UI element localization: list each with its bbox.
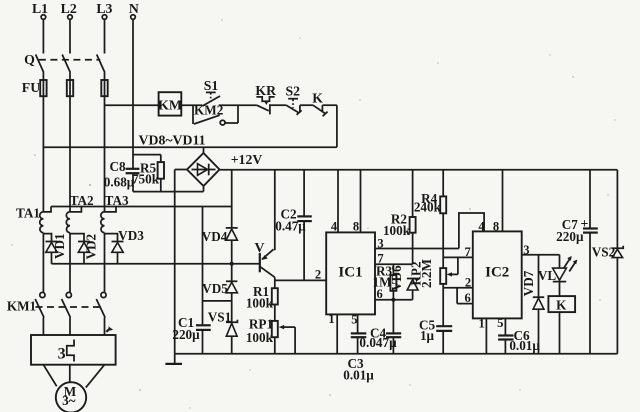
svg-text:1: 1 xyxy=(328,312,334,326)
svg-text:N: N xyxy=(129,1,139,16)
svg-text:IC1: IC1 xyxy=(338,265,362,281)
svg-text:0.47μ: 0.47μ xyxy=(275,218,306,233)
svg-text:TA1: TA1 xyxy=(16,206,40,221)
svg-text:2: 2 xyxy=(465,276,471,290)
svg-text:VD3: VD3 xyxy=(118,228,144,243)
svg-text:Q: Q xyxy=(24,52,35,67)
svg-text:100k: 100k xyxy=(246,296,274,311)
svg-text:100k: 100k xyxy=(383,223,411,238)
svg-text:K: K xyxy=(556,297,567,312)
svg-text:5: 5 xyxy=(497,316,503,330)
svg-text:IC2: IC2 xyxy=(485,265,509,281)
svg-text:FU: FU xyxy=(22,80,40,95)
svg-text:5: 5 xyxy=(351,313,357,327)
svg-text:4: 4 xyxy=(331,219,338,233)
svg-text:220μ: 220μ xyxy=(556,229,584,244)
svg-text:VD4: VD4 xyxy=(202,229,228,244)
svg-text:0.01μ: 0.01μ xyxy=(343,368,374,383)
svg-text:L1: L1 xyxy=(32,1,48,16)
svg-text:7: 7 xyxy=(465,245,471,259)
svg-text:0.68μ: 0.68μ xyxy=(104,175,135,190)
svg-text:C8: C8 xyxy=(109,159,126,174)
svg-text:4: 4 xyxy=(478,220,485,234)
svg-text:VD5: VD5 xyxy=(202,281,228,296)
svg-text:L3: L3 xyxy=(96,1,112,16)
svg-text:VD8~VD11: VD8~VD11 xyxy=(139,133,206,148)
svg-text:3: 3 xyxy=(58,346,66,363)
svg-text:VD1: VD1 xyxy=(52,233,67,259)
svg-text:VS1: VS1 xyxy=(208,310,231,325)
svg-text:KM: KM xyxy=(158,99,182,114)
svg-text:+12V: +12V xyxy=(231,152,263,167)
svg-text:S1: S1 xyxy=(204,78,219,93)
svg-text:240k: 240k xyxy=(414,200,442,215)
svg-text:TA2: TA2 xyxy=(70,193,94,208)
svg-text:V: V xyxy=(255,240,265,255)
svg-text:8: 8 xyxy=(493,220,499,234)
svg-text:KR: KR xyxy=(255,83,277,98)
svg-text:750k: 750k xyxy=(132,172,160,187)
svg-text:VL: VL xyxy=(538,268,557,283)
svg-text:S2: S2 xyxy=(286,84,301,99)
svg-text:8: 8 xyxy=(353,219,359,233)
svg-text:0.01μ: 0.01μ xyxy=(509,338,540,353)
svg-text:100k: 100k xyxy=(246,330,274,345)
svg-text:L2: L2 xyxy=(61,1,77,16)
svg-text:VD6: VD6 xyxy=(389,265,404,291)
svg-text:VS2: VS2 xyxy=(592,244,616,259)
svg-text:KM1: KM1 xyxy=(7,299,36,314)
svg-text:K: K xyxy=(312,91,323,106)
svg-text:3~: 3~ xyxy=(62,393,76,408)
svg-text:1: 1 xyxy=(478,317,484,331)
svg-text:2.2M: 2.2M xyxy=(419,258,434,287)
svg-text:VD7: VD7 xyxy=(521,270,536,296)
svg-text:220μ: 220μ xyxy=(172,327,200,342)
svg-text:0.047μ: 0.047μ xyxy=(359,335,397,350)
svg-text:2: 2 xyxy=(315,268,321,282)
svg-text:6: 6 xyxy=(465,291,471,305)
svg-text:VD2: VD2 xyxy=(83,233,98,259)
svg-text:TA3: TA3 xyxy=(105,193,129,208)
svg-text:1μ: 1μ xyxy=(420,328,435,343)
